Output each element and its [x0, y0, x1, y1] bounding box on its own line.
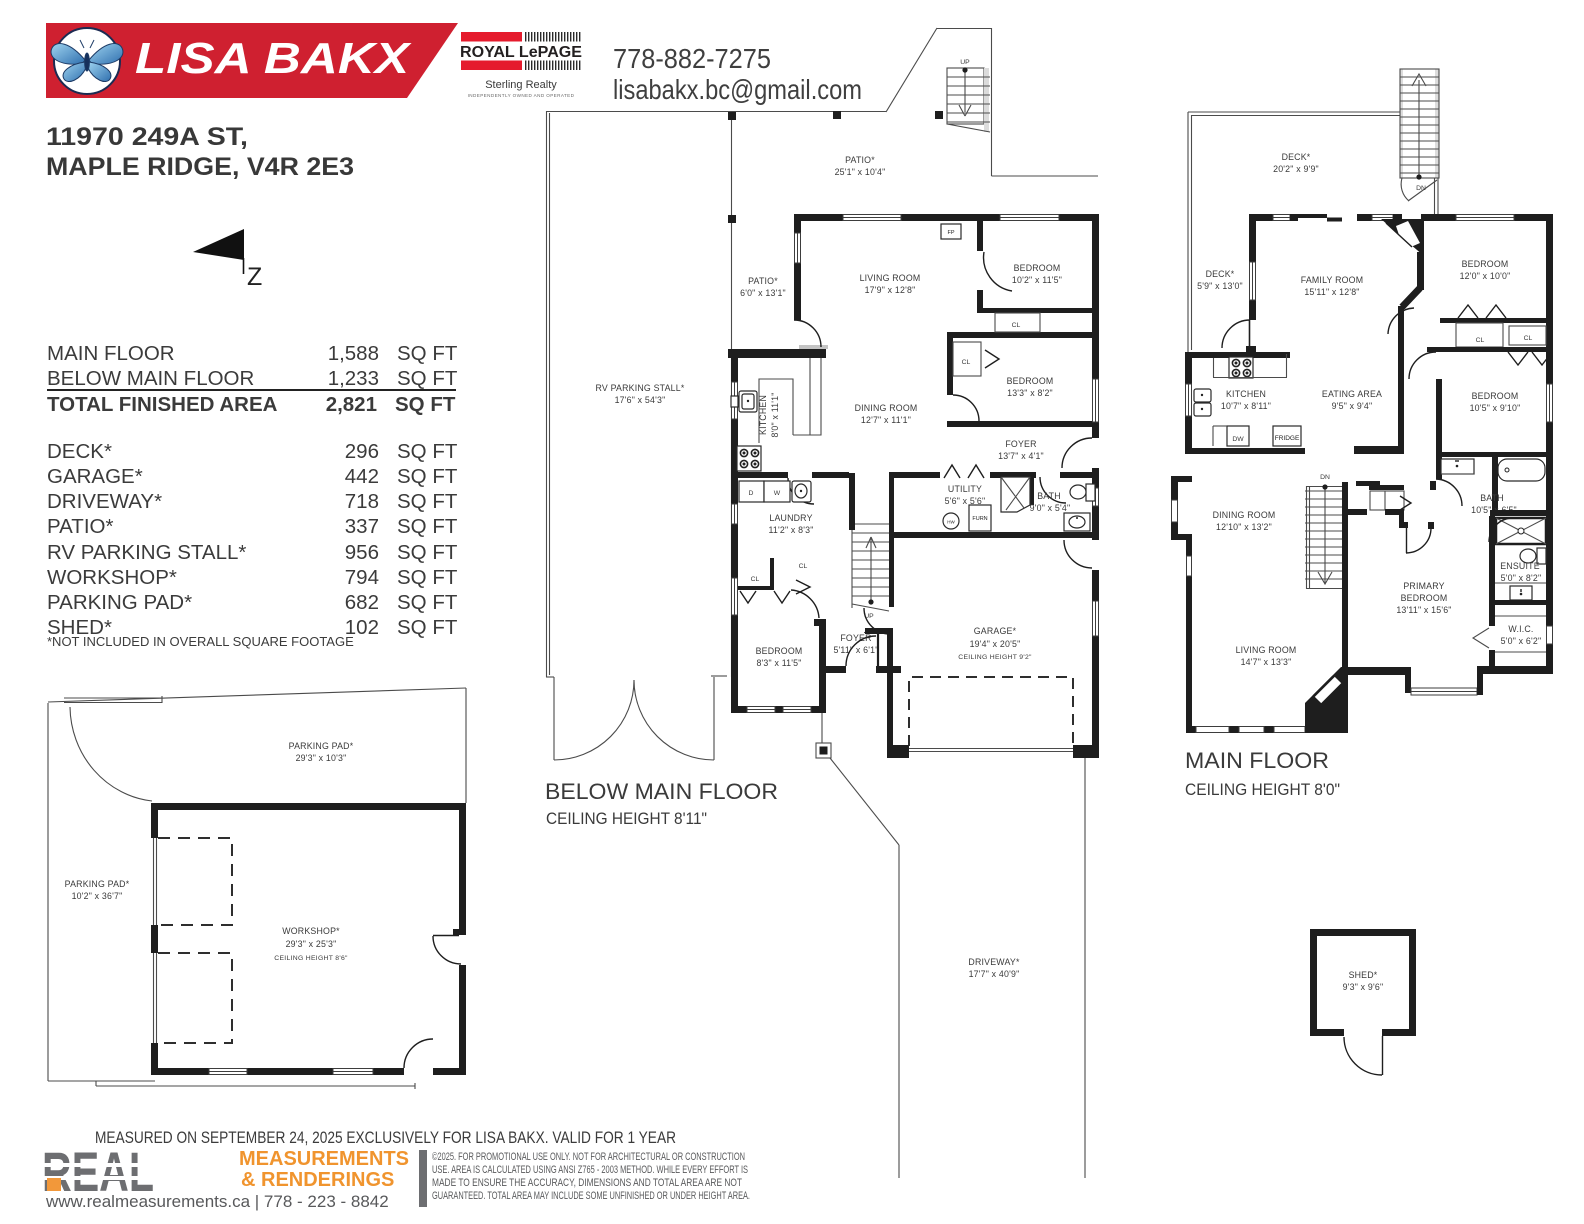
svg-text:SQ FT: SQ FT	[397, 616, 458, 639]
svg-text:5'0" x 6'2": 5'0" x 6'2"	[1501, 636, 1542, 646]
svg-text:9'3" x 9'6": 9'3" x 9'6"	[1343, 982, 1384, 992]
svg-text:FOYER: FOYER	[1005, 439, 1036, 449]
svg-text:17'6" x 54'3": 17'6" x 54'3"	[615, 395, 666, 405]
svg-text:SQ FT: SQ FT	[397, 541, 458, 564]
svg-text:12'10" x 13'2": 12'10" x 13'2"	[1216, 522, 1272, 532]
svg-text:CL: CL	[1524, 335, 1533, 342]
svg-text:6'0" x 13'1": 6'0" x 13'1"	[740, 288, 786, 298]
svg-text:EATING AREA: EATING AREA	[1322, 389, 1382, 399]
svg-text:GUARANTEED. TOTAL AREA MAY INC: GUARANTEED. TOTAL AREA MAY INCLUDE SOME …	[432, 1190, 750, 1202]
svg-text:5'11" x 6'1": 5'11" x 6'1"	[833, 645, 878, 655]
svg-text:682: 682	[345, 591, 379, 614]
svg-text:17'7" x 40'9": 17'7" x 40'9"	[969, 969, 1020, 979]
svg-text:CEILING HEIGHT 8'0": CEILING HEIGHT 8'0"	[1185, 781, 1340, 799]
svg-text:11'2" x 8'3": 11'2" x 8'3"	[768, 525, 813, 535]
svg-text:DN: DN	[1320, 474, 1330, 481]
svg-text:CL: CL	[799, 563, 808, 570]
svg-text:MAIN FLOOR: MAIN FLOOR	[1185, 748, 1329, 773]
svg-text:PRIMARY: PRIMARY	[1403, 581, 1444, 591]
svg-text:USE. AREA IS CALCULATED USING: USE. AREA IS CALCULATED USING ANSI Z765 …	[432, 1164, 748, 1176]
svg-text:25'1" x 10'4": 25'1" x 10'4"	[835, 167, 886, 177]
svg-text:W: W	[774, 490, 781, 497]
svg-text:MAIN FLOOR: MAIN FLOOR	[47, 342, 175, 365]
svg-text:INDEPENDENTLY OWNED AND OPERAT: INDEPENDENTLY OWNED AND OPERATED	[468, 93, 575, 98]
svg-text:778-882-7275: 778-882-7275	[613, 43, 771, 74]
svg-text:29'3" x 10'3": 29'3" x 10'3"	[296, 753, 347, 763]
svg-text:TOTAL FINISHED AREA: TOTAL FINISHED AREA	[47, 393, 278, 416]
svg-text:WORKSHOP*: WORKSHOP*	[47, 566, 177, 589]
svg-text:lisabakx.bc@gmail.com: lisabakx.bc@gmail.com	[613, 74, 862, 105]
svg-text:1,588: 1,588	[328, 342, 379, 365]
svg-text:MADE TO ENSURE THE ACCURAC: MADE TO ENSURE THE ACCURACY, DIMENSIONS …	[432, 1177, 742, 1189]
svg-text:PATIO*: PATIO*	[845, 155, 875, 165]
svg-text:13'11" x 15'6": 13'11" x 15'6"	[1396, 605, 1451, 615]
svg-text:LISA BAKX: LISA BAKX	[135, 34, 412, 83]
svg-text:BEDROOM: BEDROOM	[1462, 259, 1509, 269]
svg-text:ENSUITE: ENSUITE	[1500, 561, 1540, 571]
svg-text:BELOW MAIN FLOOR: BELOW MAIN FLOOR	[545, 779, 778, 804]
svg-text:13'3" x 8'2": 13'3" x 8'2"	[1007, 388, 1053, 398]
svg-text:10'2" x 11'5": 10'2" x 11'5"	[1012, 275, 1062, 285]
svg-text:FURN: FURN	[972, 516, 987, 522]
svg-text:DRIVEWAY*: DRIVEWAY*	[968, 957, 1020, 967]
svg-text:©2025. FOR PROMOTIONAL USE ONL: ©2025. FOR PROMOTIONAL USE ONLY. NOT FOR…	[432, 1151, 745, 1163]
svg-text:8'3" x 11'5": 8'3" x 11'5"	[756, 658, 801, 668]
svg-text:*NOT INCLUDED IN OVERALL SQUAR: *NOT INCLUDED IN OVERALL SQUARE FOOTAGE	[47, 634, 354, 649]
svg-text:Sterling Realty: Sterling Realty	[485, 79, 557, 91]
svg-text:SHED*: SHED*	[1349, 970, 1378, 980]
svg-text:337: 337	[345, 515, 379, 538]
svg-text:KITCHEN: KITCHEN	[1226, 389, 1266, 399]
svg-text:718: 718	[345, 490, 379, 513]
svg-text:CL: CL	[1012, 322, 1021, 329]
svg-text:PARKING PAD*: PARKING PAD*	[65, 879, 130, 889]
svg-text:& RENDERINGS: & RENDERINGS	[241, 1169, 394, 1191]
svg-text:15'11" x 12'8": 15'11" x 12'8"	[1304, 287, 1359, 297]
svg-text:FAMILY ROOM: FAMILY ROOM	[1301, 275, 1364, 285]
svg-text:SQ FT: SQ FT	[397, 440, 458, 463]
svg-text:LIVING ROOM: LIVING ROOM	[860, 273, 921, 283]
svg-text:5'9" x 13'0": 5'9" x 13'0"	[1197, 281, 1243, 291]
svg-text:CL: CL	[751, 576, 760, 583]
svg-text:GARAGE*: GARAGE*	[47, 465, 143, 488]
svg-text:20'2" x 9'9": 20'2" x 9'9"	[1273, 164, 1319, 174]
svg-text:DECK*: DECK*	[1206, 269, 1235, 279]
svg-text:9'5" x 9'4": 9'5" x 9'4"	[1332, 401, 1373, 411]
svg-text:CEILING HEIGHT 9'2": CEILING HEIGHT 9'2"	[958, 654, 1032, 661]
svg-text:SQ FT: SQ FT	[395, 393, 456, 416]
svg-text:956: 956	[345, 541, 379, 564]
svg-text:DINING ROOM: DINING ROOM	[1213, 510, 1276, 520]
svg-text:14'7" x 13'3": 14'7" x 13'3"	[1241, 657, 1292, 667]
svg-text:8'0" x 11'1": 8'0" x 11'1"	[770, 392, 780, 437]
svg-text:GARAGE*: GARAGE*	[974, 626, 1017, 636]
svg-text:HW: HW	[947, 520, 955, 525]
svg-text:PATIO*: PATIO*	[47, 515, 113, 538]
svg-text:CEILING HEIGHT 8'11": CEILING HEIGHT 8'11"	[546, 810, 707, 828]
svg-text:BEDROOM: BEDROOM	[1472, 391, 1519, 401]
svg-text:Z: Z	[247, 263, 262, 291]
svg-text:DN: DN	[1416, 185, 1426, 192]
svg-text:10'5" x 9'10": 10'5" x 9'10"	[1470, 403, 1521, 413]
svg-text:SQ FT: SQ FT	[397, 342, 458, 365]
svg-text:SQ FT: SQ FT	[397, 591, 458, 614]
svg-text:LAUNDRY: LAUNDRY	[769, 513, 812, 523]
svg-text:17'9" x 12'8": 17'9" x 12'8"	[865, 285, 916, 295]
svg-text:9'0" x 5'4": 9'0" x 5'4"	[1030, 503, 1071, 513]
svg-text:SQ FT: SQ FT	[397, 515, 458, 538]
svg-text:FP: FP	[947, 230, 954, 236]
svg-text:PARKING PAD*: PARKING PAD*	[47, 591, 192, 614]
svg-text:1,233: 1,233	[328, 367, 379, 390]
svg-text:CL: CL	[1476, 337, 1485, 344]
svg-text:BATH: BATH	[1480, 493, 1504, 503]
svg-text:DRIVEWAY*: DRIVEWAY*	[47, 490, 162, 513]
svg-text:www.realmeasurements.ca | 778: www.realmeasurements.ca | 778 - 223 - 88…	[45, 1192, 389, 1211]
svg-text:SQ FT: SQ FT	[397, 465, 458, 488]
svg-text:12'0" x 10'0": 12'0" x 10'0"	[1460, 271, 1511, 281]
svg-text:5'0" x 8'2": 5'0" x 8'2"	[1501, 573, 1542, 583]
svg-text:DW: DW	[1232, 436, 1244, 443]
svg-text:10'7" x 8'11": 10'7" x 8'11"	[1221, 401, 1271, 411]
svg-text:11970 249A ST,: 11970 249A ST,	[46, 123, 248, 151]
svg-text:RV PARKING STALL*: RV PARKING STALL*	[47, 541, 246, 564]
svg-text:BATH: BATH	[1037, 491, 1061, 501]
svg-text:PATIO*: PATIO*	[748, 276, 778, 286]
svg-text:CL: CL	[962, 359, 971, 366]
svg-text:MEASUREMENTS: MEASUREMENTS	[239, 1148, 409, 1170]
svg-text:W.I.C.: W.I.C.	[1508, 624, 1533, 634]
svg-text:MAPLE RIDGE, V4R 2E3: MAPLE RIDGE, V4R 2E3	[46, 153, 354, 181]
svg-text:SQ FT: SQ FT	[397, 490, 458, 513]
svg-text:DECK*: DECK*	[47, 440, 112, 463]
svg-text:19'4" x 20'5": 19'4" x 20'5"	[970, 639, 1021, 649]
svg-text:UP: UP	[960, 59, 970, 66]
svg-text:DECK*: DECK*	[1282, 152, 1311, 162]
svg-text:442: 442	[345, 465, 379, 488]
svg-text:BEDROOM: BEDROOM	[1401, 593, 1448, 603]
svg-text:BEDROOM: BEDROOM	[1014, 263, 1061, 273]
svg-text:CEILING HEIGHT 8'6": CEILING HEIGHT 8'6"	[274, 955, 348, 962]
svg-text:BEDROOM: BEDROOM	[1007, 376, 1054, 386]
svg-text:BELOW MAIN FLOOR: BELOW MAIN FLOOR	[47, 367, 254, 390]
svg-text:SQ FT: SQ FT	[397, 367, 458, 390]
svg-text:RV PARKING STALL*: RV PARKING STALL*	[596, 383, 685, 393]
svg-text:12'7" x 11'1": 12'7" x 11'1"	[861, 415, 911, 425]
svg-text:ROYAL LePAGE: ROYAL LePAGE	[460, 44, 582, 61]
svg-text:BEDROOM: BEDROOM	[756, 646, 803, 656]
svg-text:2,821: 2,821	[326, 393, 377, 416]
svg-text:FRIDGE: FRIDGE	[1275, 435, 1300, 442]
svg-text:296: 296	[345, 440, 379, 463]
svg-text:PARKING PAD*: PARKING PAD*	[289, 741, 354, 751]
svg-text:UTILITY: UTILITY	[948, 484, 982, 494]
svg-text:794: 794	[345, 566, 379, 589]
svg-text:DINING ROOM: DINING ROOM	[855, 403, 918, 413]
svg-text:29'3" x 25'3": 29'3" x 25'3"	[286, 939, 337, 949]
svg-text:KITCHEN: KITCHEN	[758, 395, 768, 435]
svg-text:D: D	[749, 490, 754, 497]
svg-text:10'2" x 36'7": 10'2" x 36'7"	[72, 891, 123, 901]
svg-text:SQ FT: SQ FT	[397, 566, 458, 589]
svg-text:MEASURED ON SEPTEMBER 24, 2025: MEASURED ON SEPTEMBER 24, 2025 EXCLUSIVE…	[95, 1129, 676, 1147]
svg-text:LIVING ROOM: LIVING ROOM	[1236, 645, 1297, 655]
svg-text:WORKSHOP*: WORKSHOP*	[282, 926, 340, 936]
svg-text:13'7" x 4'1": 13'7" x 4'1"	[998, 451, 1044, 461]
